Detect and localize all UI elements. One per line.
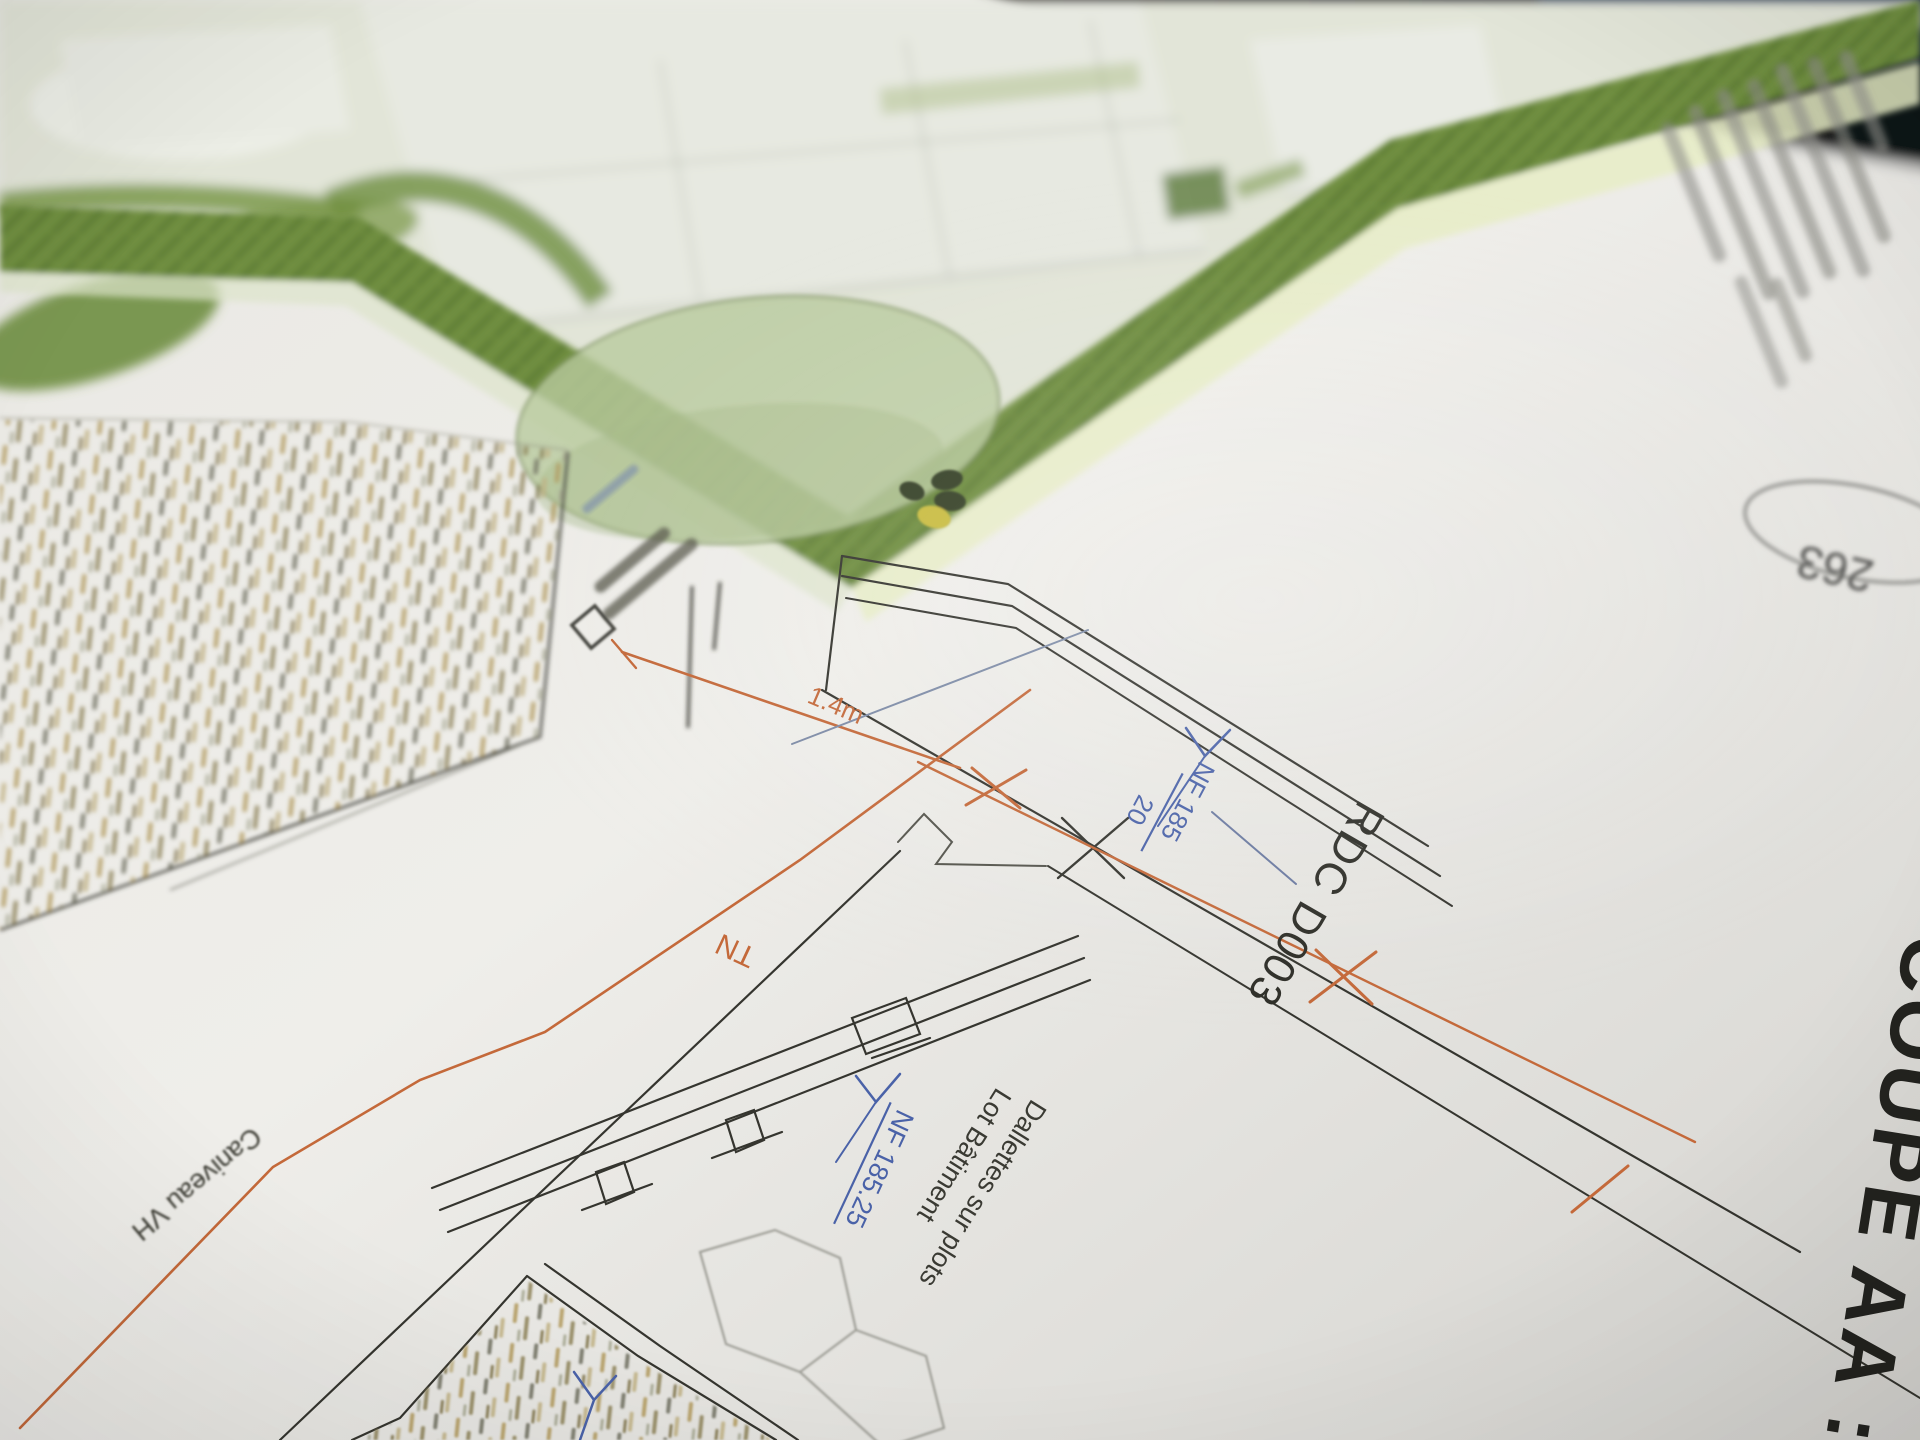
photo-of-architectural-plan: NF 185 20 NF 185.25 RDC D003 Dallettes s… [0,0,1920,1440]
plan-photo-canvas: NF 185 20 NF 185.25 RDC D003 Dallettes s… [0,0,1920,1440]
vignette [0,0,1920,1440]
